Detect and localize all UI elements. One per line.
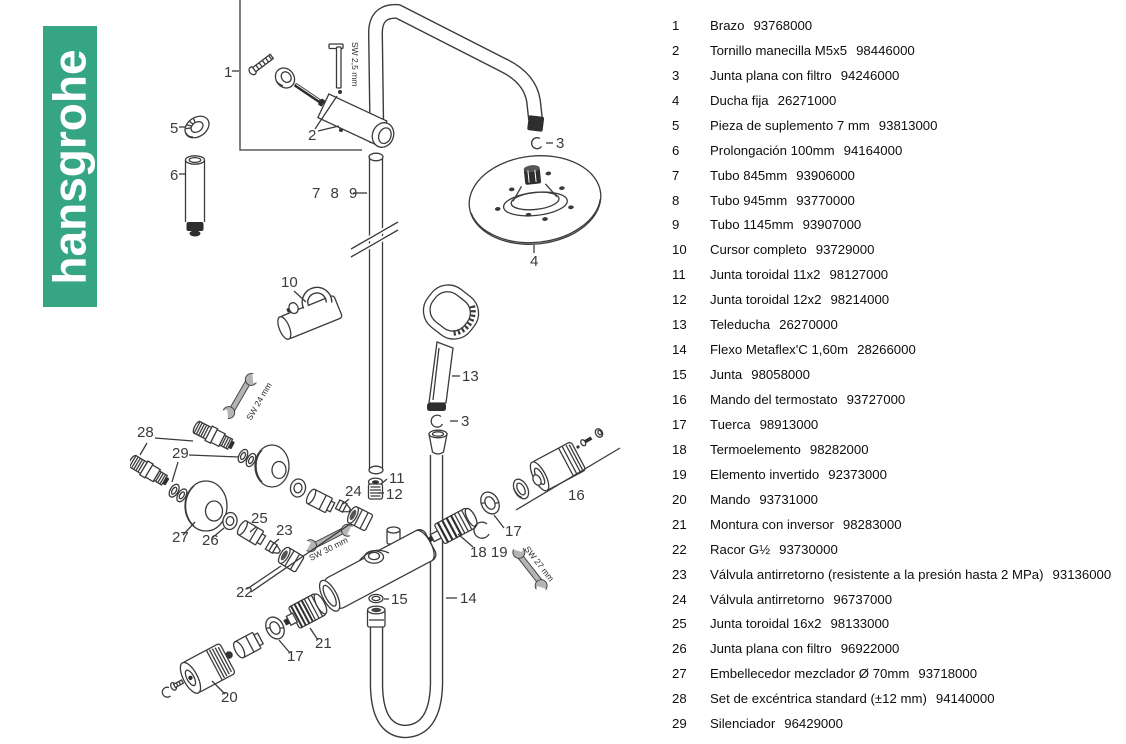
- part-code: 93906000: [796, 168, 855, 183]
- part-code: 98283000: [843, 517, 902, 532]
- part-code: 98058000: [751, 367, 810, 382]
- washer-upper: [289, 478, 307, 498]
- part-name: Junta plana con filtro: [710, 641, 832, 656]
- part-number: 17: [672, 417, 710, 432]
- part-code: 28266000: [857, 342, 916, 357]
- part-diverter-cartridge: [279, 591, 330, 633]
- callout-10: 10: [281, 274, 298, 291]
- part-code: 98214000: [830, 292, 889, 307]
- wall-arm: [318, 94, 397, 150]
- part-name: Junta toroidal 16x2: [710, 616, 821, 631]
- parts-list-row: 13Teleducha26270000: [672, 312, 1124, 337]
- part-name: Flexo Metaflex'C 1,60m: [710, 342, 848, 357]
- parts-list-row: 16Mando del termostato93727000: [672, 387, 1124, 412]
- handle-knob: [271, 64, 298, 92]
- parts-list-row: 10Cursor completo93729000: [672, 237, 1124, 262]
- part-code: 98282000: [810, 442, 869, 457]
- part-number: 18: [672, 442, 710, 457]
- part-name: Mando del termostato: [710, 392, 838, 407]
- grub-screw: [248, 53, 275, 76]
- parts-list-row: 9Tubo 1145mm93907000: [672, 213, 1124, 238]
- callout-14: 14: [460, 590, 477, 607]
- callout-4: 4: [530, 253, 538, 270]
- escutcheon-upper: [255, 445, 289, 487]
- escutcheon-lower: [185, 481, 227, 531]
- knob-screw: [169, 678, 184, 691]
- part-name: Tubo 945mm: [710, 193, 787, 208]
- parts-list-row: 24Válvula antirretorno96737000: [672, 587, 1124, 612]
- clip-19: [474, 522, 489, 538]
- part-number: 9: [672, 217, 710, 232]
- part-number: 1: [672, 18, 710, 33]
- parts-list-row: 20Mando93731000: [672, 487, 1124, 512]
- part-number: 16: [672, 392, 710, 407]
- part-overhead-shower: [465, 149, 605, 250]
- part-name: Set de excéntrica standard (±12 mm): [710, 691, 927, 706]
- part-slider: [271, 284, 343, 341]
- parts-list-row: 23Válvula antirretorno (resistente a la …: [672, 562, 1124, 587]
- part-name: Racor G½: [710, 542, 770, 557]
- parts-list-row: 17Tuerca98913000: [672, 412, 1124, 437]
- parts-list-row: 29Silenciador96429000: [672, 711, 1124, 736]
- long-screw: [293, 82, 326, 107]
- callout-3b: 3: [461, 413, 469, 430]
- parts-list-row: 1Brazo93768000: [672, 13, 1124, 38]
- part-code: 26270000: [779, 317, 838, 332]
- part-number: 21: [672, 517, 710, 532]
- parts-list-row: 28Set de excéntrica standard (±12 mm)941…: [672, 686, 1124, 711]
- hansgrohe-logo: hansgrohe: [43, 26, 97, 307]
- callout-11: 11: [389, 470, 405, 487]
- part-code: 93907000: [803, 217, 862, 232]
- part-name: Teleducha: [710, 317, 770, 332]
- part-code: 94140000: [936, 691, 995, 706]
- part-code: 98913000: [760, 417, 819, 432]
- parts-list-row: 5Pieza de suplemento 7 mm93813000: [672, 113, 1124, 138]
- knob-screws: [576, 427, 604, 448]
- part-code: 93813000: [879, 118, 938, 133]
- callout-27: 27: [172, 529, 189, 546]
- callout-7-8-9: 7 8 9: [312, 185, 360, 202]
- allen-key-icon: [329, 44, 343, 88]
- part-name: Elemento invertido: [710, 467, 819, 482]
- parts-list: 1Brazo93768000 2Tornillo manecilla M5x59…: [672, 13, 1124, 736]
- callout-25: 25: [251, 510, 268, 527]
- part-number: 26: [672, 641, 710, 656]
- part-code: 93768000: [753, 18, 812, 33]
- part-number: 23: [672, 567, 710, 582]
- callout-20: 20: [221, 689, 238, 706]
- allen-key-label: SW 2,5 mm: [350, 42, 360, 86]
- callout-28: 28: [137, 424, 154, 441]
- part-code: 92373000: [828, 467, 887, 482]
- part-name: Junta: [710, 367, 742, 382]
- part-code: 26271000: [778, 93, 837, 108]
- part-name: Tubo 1145mm: [710, 217, 794, 232]
- callout-1: 1: [224, 64, 232, 81]
- parts-list-row: 18Termoelemento98282000: [672, 437, 1124, 462]
- part-number: 8: [672, 193, 710, 208]
- part-code: 93731000: [759, 492, 818, 507]
- knob-adapter: [231, 630, 264, 659]
- callout-24: 24: [345, 483, 362, 500]
- part-name: Embellecedor mezclador Ø 70mm: [710, 666, 909, 681]
- part-code: 94246000: [841, 68, 900, 83]
- part-number: 4: [672, 93, 710, 108]
- part-name: Válvula antirretorno (resistente a la pr…: [710, 567, 1044, 582]
- part-code: 98133000: [830, 616, 889, 631]
- parts-list-row: 2Tornillo manecilla M5x598446000: [672, 38, 1124, 63]
- part-code: 98127000: [829, 267, 888, 282]
- part-o-ring-fitting-11-12: [369, 478, 383, 499]
- part-number: 12: [672, 292, 710, 307]
- part-number: 15: [672, 367, 710, 382]
- part-code: 96429000: [784, 716, 843, 731]
- part-code: 93136000: [1053, 567, 1112, 582]
- part-code: 96922000: [841, 641, 900, 656]
- callout-3a: 3: [556, 135, 564, 152]
- part-number: 24: [672, 592, 710, 607]
- knob-cap: [162, 687, 170, 697]
- part-number: 25: [672, 616, 710, 631]
- part-name: Válvula antirretorno: [710, 592, 824, 607]
- callout-12: 12: [386, 486, 403, 503]
- parts-list-row: 11Junta toroidal 11x298127000: [672, 262, 1124, 287]
- part-name: Silenciador: [710, 716, 775, 731]
- part-number: 2: [672, 43, 710, 58]
- parts-list-row: 22Racor G½93730000: [672, 537, 1124, 562]
- parts-list-row: 26Junta plana con filtro96922000: [672, 636, 1124, 661]
- part-name: Pieza de suplemento 7 mm: [710, 118, 870, 133]
- parts-list-row: 6Prolongación 100mm94164000: [672, 138, 1124, 163]
- part-code: 93770000: [796, 193, 855, 208]
- part-name: Mando: [710, 492, 750, 507]
- part-number: 22: [672, 542, 710, 557]
- callout-22: 22: [236, 584, 253, 601]
- hose-cone: [429, 430, 447, 454]
- part-number: 29: [672, 716, 710, 731]
- gasket-3-top: [532, 138, 542, 149]
- part-code: 98446000: [856, 43, 915, 58]
- part-name: Termoelemento: [710, 442, 801, 457]
- part-code: 93730000: [779, 542, 838, 557]
- part-name: Ducha fija: [710, 93, 769, 108]
- part-name: Montura con inversor: [710, 517, 834, 532]
- part-name: Junta plana con filtro: [710, 68, 832, 83]
- part-number: 6: [672, 143, 710, 158]
- callout-18-19: 18 19: [470, 544, 508, 561]
- part-number: 5: [672, 118, 710, 133]
- part-number: 3: [672, 68, 710, 83]
- parts-list-row: 15Junta98058000: [672, 362, 1124, 387]
- callout-21: 21: [315, 635, 332, 652]
- callout-15: 15: [391, 591, 408, 608]
- part-code: 94164000: [844, 143, 903, 158]
- parts-list-row: 8Tubo 945mm93770000: [672, 188, 1124, 213]
- part-name: Junta toroidal 12x2: [710, 292, 821, 307]
- part-number: 7: [672, 168, 710, 183]
- exploded-diagram: 1 2 3 4 5 6 7 8 9 10 11 12 13 3 14 15 16…: [130, 0, 660, 744]
- hose-nut: [368, 606, 386, 627]
- o-ring-15: [369, 594, 383, 602]
- part-code: 96737000: [833, 592, 892, 607]
- part-number: 14: [672, 342, 710, 357]
- knob-front-ring: [510, 477, 531, 502]
- callout-29: 29: [172, 445, 189, 462]
- part-code: 93729000: [816, 242, 875, 257]
- part-name: Cursor completo: [710, 242, 807, 257]
- callout-17a: 17: [287, 648, 304, 665]
- parts-list-row: 7Tubo 845mm93906000: [672, 163, 1124, 188]
- part-name: Tuerca: [710, 417, 751, 432]
- callout-13: 13: [462, 368, 479, 385]
- part-code: 93727000: [847, 392, 906, 407]
- parts-list-row: 4Ducha fija26271000: [672, 88, 1124, 113]
- shower-arm-pipe-outline: [375, 11, 535, 143]
- parts-list-row: 25Junta toroidal 16x298133000: [672, 612, 1124, 637]
- callout-17b: 17: [505, 523, 522, 540]
- part-handshower: [415, 276, 487, 411]
- part-number: 10: [672, 242, 710, 257]
- part-name: Junta toroidal 11x2: [710, 267, 820, 282]
- callout-23: 23: [276, 522, 293, 539]
- part-number: 27: [672, 666, 710, 681]
- gasket-3-hose: [431, 415, 442, 427]
- part-extension-tube: [186, 156, 205, 237]
- callout-2: 2: [308, 127, 316, 144]
- part-name: Tornillo manecilla M5x5: [710, 43, 847, 58]
- parts-list-row: 12Junta toroidal 12x298214000: [672, 287, 1124, 312]
- part-number: 20: [672, 492, 710, 507]
- part-number: 19: [672, 467, 710, 482]
- part-name: Prolongación 100mm: [710, 143, 835, 158]
- part-code: 93718000: [918, 666, 977, 681]
- part-number: 11: [672, 267, 710, 282]
- part-name: Tubo 845mm: [710, 168, 787, 183]
- part-number: 28: [672, 691, 710, 706]
- pipe-end-fitting: [527, 115, 544, 132]
- part-name: Brazo: [710, 18, 744, 33]
- callout-5: 5: [170, 120, 178, 137]
- parts-list-row: 3Junta plana con filtro94246000: [672, 63, 1124, 88]
- parts-list-row: 14Flexo Metaflex'C 1,60m28266000: [672, 337, 1124, 362]
- parts-list-row: 27Embellecedor mezclador Ø 70mm93718000: [672, 661, 1124, 686]
- part-number: 13: [672, 317, 710, 332]
- callout-26: 26: [202, 532, 219, 549]
- callout-6: 6: [170, 167, 178, 184]
- hansgrohe-logo-text: hansgrohe: [43, 49, 97, 284]
- callout-16: 16: [568, 487, 585, 504]
- parts-list-row: 21Montura con inversor98283000: [672, 512, 1124, 537]
- parts-list-row: 19Elemento invertido92373000: [672, 462, 1124, 487]
